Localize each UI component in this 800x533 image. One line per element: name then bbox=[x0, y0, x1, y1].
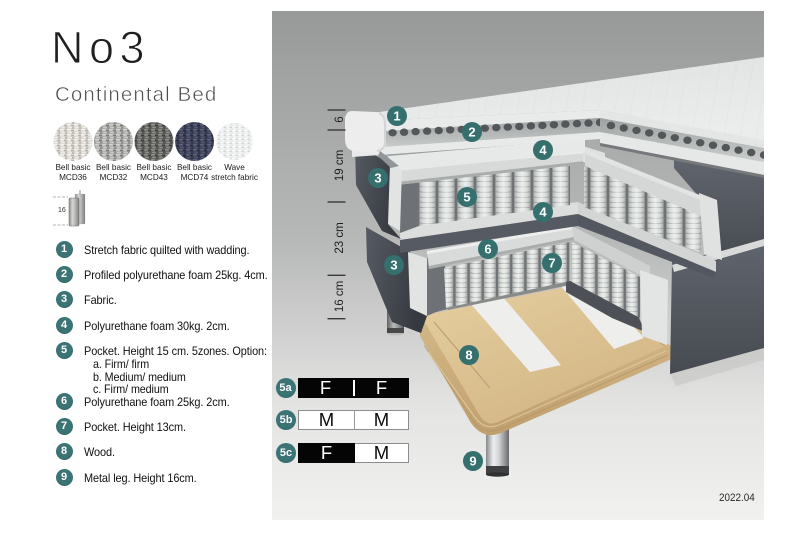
svg-text:7: 7 bbox=[548, 256, 555, 271]
svg-text:MCD74: MCD74 bbox=[181, 173, 209, 182]
svg-text:6: 6 bbox=[334, 116, 346, 122]
svg-text:3: 3 bbox=[374, 171, 381, 186]
svg-text:MCD36: MCD36 bbox=[59, 173, 87, 182]
svg-text:6: 6 bbox=[484, 242, 491, 257]
svg-text:2: 2 bbox=[468, 125, 475, 140]
svg-text:MCD43: MCD43 bbox=[140, 173, 168, 182]
svg-text:stretch fabric: stretch fabric bbox=[211, 173, 258, 182]
svg-text:4: 4 bbox=[539, 205, 547, 220]
svg-text:23 cm: 23 cm bbox=[334, 222, 346, 253]
svg-text:16 cm: 16 cm bbox=[334, 281, 346, 312]
svg-text:19 cm: 19 cm bbox=[334, 150, 346, 181]
svg-text:MCD32: MCD32 bbox=[100, 173, 128, 182]
svg-text:9: 9 bbox=[469, 454, 476, 469]
svg-text:4: 4 bbox=[539, 143, 547, 158]
svg-text:1: 1 bbox=[393, 109, 400, 124]
svg-text:Bell basic: Bell basic bbox=[136, 163, 171, 172]
svg-text:Bell basic: Bell basic bbox=[96, 163, 131, 172]
svg-text:Wave: Wave bbox=[224, 163, 245, 172]
svg-text:16: 16 bbox=[58, 207, 66, 214]
svg-text:Bell basic: Bell basic bbox=[177, 163, 212, 172]
svg-text:Bell basic: Bell basic bbox=[55, 163, 90, 172]
svg-text:3: 3 bbox=[390, 258, 397, 273]
svg-text:5: 5 bbox=[463, 190, 470, 205]
svg-text:8: 8 bbox=[465, 348, 472, 363]
